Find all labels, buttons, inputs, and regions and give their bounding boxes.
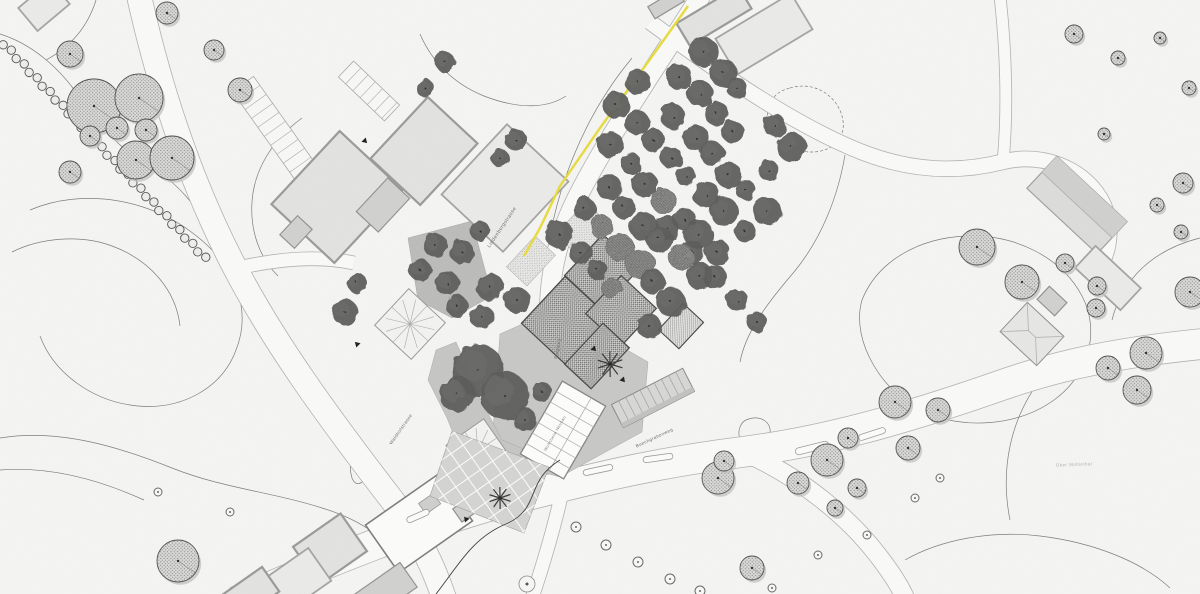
hedge-bush xyxy=(51,96,59,104)
hedge-bush xyxy=(25,68,33,76)
hedge-bush xyxy=(38,82,46,90)
tree-sapling xyxy=(226,508,234,516)
tree-sapling xyxy=(768,584,776,592)
hedge-bush xyxy=(7,46,15,54)
hedge-bush xyxy=(46,87,54,95)
tree-sapling xyxy=(154,488,162,496)
hedge-bush xyxy=(168,220,176,228)
hedge-bush xyxy=(137,184,145,192)
tree-sapling xyxy=(936,474,944,482)
hedge-bush xyxy=(189,239,197,247)
hedge-bush xyxy=(202,253,210,261)
hedge-bush xyxy=(181,234,189,242)
hedge-bush xyxy=(20,60,28,68)
site-plan: LindenbergstrasseBurgwegWaldhofstrasseBu… xyxy=(0,0,1200,594)
tree-sapling xyxy=(911,494,919,502)
tree-sapling xyxy=(695,586,705,594)
hedge-bush xyxy=(0,41,7,49)
tree-sapling xyxy=(601,540,611,550)
tree-sapling xyxy=(863,531,871,539)
roundabout-center-dot xyxy=(526,583,529,586)
hedge-bush xyxy=(176,225,184,233)
tree-sapling xyxy=(814,551,822,559)
site-plan-svg: LindenbergstrasseBurgwegWaldhofstrasseBu… xyxy=(0,0,1200,594)
hedge-bush xyxy=(163,212,171,220)
hedge-bush xyxy=(155,206,163,214)
tree-sapling xyxy=(633,557,643,567)
hedge-bush xyxy=(59,101,67,109)
hedge-bush xyxy=(12,54,20,62)
tree-sapling xyxy=(665,574,675,584)
hedge-bush xyxy=(194,248,202,256)
tree-sapling xyxy=(571,522,581,532)
site-plan-canvas: LindenbergstrasseBurgwegWaldhofstrasseBu… xyxy=(0,0,1200,594)
hedge-bush xyxy=(142,192,150,200)
hedge-bush xyxy=(103,151,111,159)
hedge-bush xyxy=(150,198,158,206)
road-surface xyxy=(1000,0,1006,162)
hedge-bush xyxy=(33,74,41,82)
